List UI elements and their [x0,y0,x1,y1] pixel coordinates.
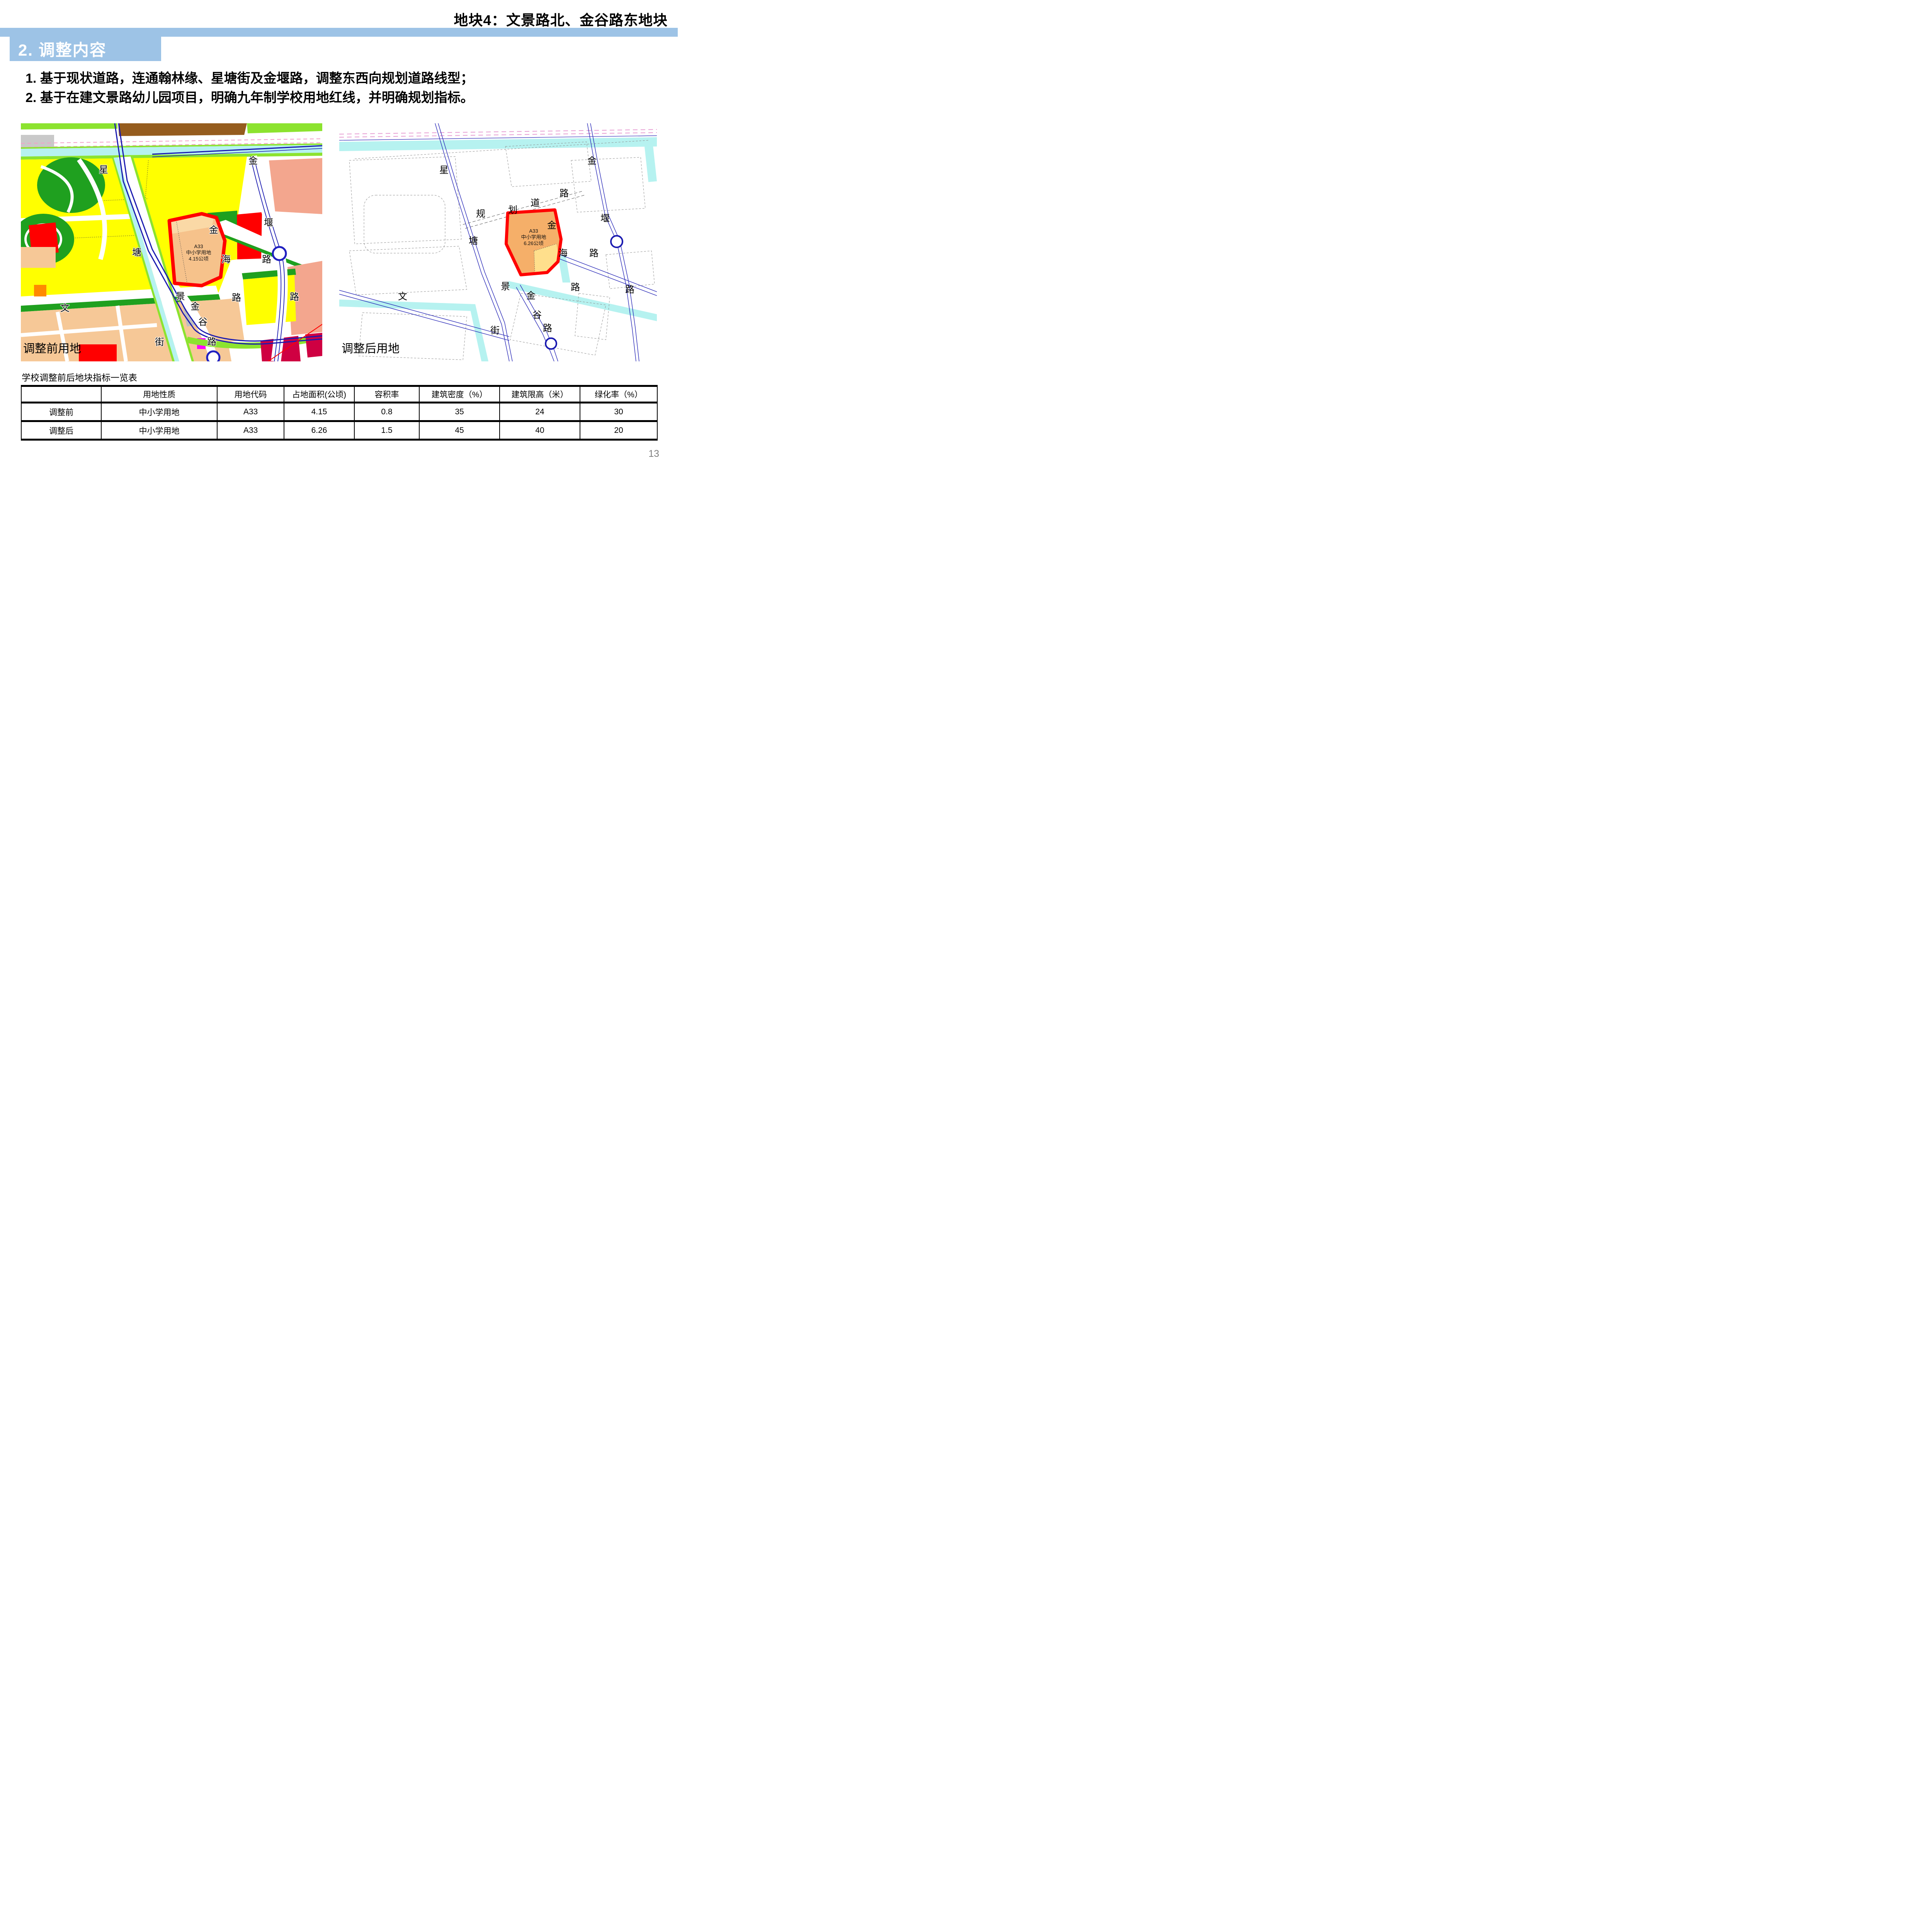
cell: 调整后 [21,421,101,440]
cell: 中小学用地 [101,403,217,421]
street-char: 规 [476,209,485,219]
street-char: 堰 [600,214,610,224]
street-char: 路 [290,292,299,302]
street-char: 金 [190,302,200,312]
section-title: 2. 调整内容 [10,37,107,61]
street-char: 景 [501,282,510,292]
a33-code: A33 [173,243,224,250]
table-title: 学校调整前后地块指标一览表 [22,370,137,383]
header-cell-code: 用地代码 [217,386,284,403]
header-cell-rowlabel [21,386,101,403]
street-char: 塘 [132,248,141,258]
cell: A33 [217,421,284,440]
cell-highlighted: 20 [580,421,657,440]
before-map-graphic [21,123,322,361]
cell-highlighted: 6.26 [284,421,354,440]
intro-text: 1. 基于现状道路，连通翰林缘、星塘街及金堰路，调整东西向规划道路线型； 2. … [26,69,474,107]
cell: 4.15 [284,403,354,421]
page-title: 地块4：文景路北、金谷路东地块 [454,9,668,29]
street-char: 塘 [469,236,478,246]
roundabout [207,351,219,361]
a33-label-before: A33 中小学用地 4.15公顷 [173,243,224,262]
roundabout [611,236,622,247]
cell-highlighted: 45 [419,421,500,440]
street-char: 堰 [264,218,273,228]
street-char: 谷 [532,310,542,320]
street-char: 路 [543,323,552,334]
a33-use: 中小学用地 [509,234,559,240]
cell: A33 [217,403,284,421]
page-number: 13 [648,448,659,460]
street-char: 文 [60,303,70,313]
indicator-table: 用地性质 用地代码 占地面积(公顷) 容积率 建筑密度（%） 建筑限高（米） 绿… [21,385,658,441]
intro-line-2: 2. 基于在建文景路幼儿园项目，明确九年制学校用地红线，并明确规划指标。 [26,88,474,107]
street-char: 街 [490,326,500,336]
map-caption-after: 调整后用地 [342,339,400,356]
a33-use: 中小学用地 [173,250,224,256]
header-cell-area: 占地面积(公顷) [284,386,354,403]
street-char: 路 [625,285,634,295]
street-char: 谷 [198,317,207,327]
street-char: 路 [589,249,599,259]
header-cell-green: 绿化率（%） [580,386,657,403]
cell: 30 [580,403,657,421]
header-cell-density: 建筑密度（%） [419,386,500,403]
a33-code: A33 [509,228,559,234]
slide-page: 地块4：文景路北、金谷路东地块 2. 调整内容 1. 基于现状道路，连通翰林缘、… [0,0,678,479]
cell: 调整前 [21,403,101,421]
street-char: 金 [526,291,536,301]
street-char: 划 [508,205,517,215]
intro-line-1: 1. 基于现状道路，连通翰林缘、星塘街及金堰路，调整东西向规划道路线型； [26,69,474,88]
street-char: 路 [560,189,569,199]
street-char: 路 [232,293,241,303]
roundabout [273,247,286,260]
header-cell-far: 容积率 [354,386,419,403]
table-row-after: 调整后 中小学用地 A33 6.26 1.5 45 40 20 [21,421,657,440]
cell-highlighted: 1.5 [354,421,419,440]
street-char: 路 [571,283,580,293]
header-cell-landuse: 用地性质 [101,386,217,403]
cell: 24 [500,403,580,421]
header-band [0,28,678,37]
street-char: 道 [531,198,540,208]
street-char: 星 [99,165,108,175]
street-char: 文 [398,292,407,302]
a33-area: 6.26公顷 [509,240,559,247]
header-cell-height: 建筑限高（米） [500,386,580,403]
cell: 35 [419,403,500,421]
street-char: 景 [176,292,185,302]
street-char: 街 [155,337,164,347]
section-banner: 2. 调整内容 [10,36,161,61]
street-char: 星 [439,165,449,175]
table-row-before: 调整前 中小学用地 A33 4.15 0.8 35 24 30 [21,403,657,421]
street-char: 路 [207,337,216,347]
street-char: 金 [587,156,597,166]
street-char: 金 [248,156,258,166]
street-char: 路 [262,255,271,265]
map-after: 星 塘 街 规 划 道 路 金 堰 路 金 海 路 景 金 谷 路 文 路 A3… [339,123,657,361]
cell: 0.8 [354,403,419,421]
cell: 中小学用地 [101,421,217,440]
table-header-row: 用地性质 用地代码 占地面积(公顷) 容积率 建筑密度（%） 建筑限高（米） 绿… [21,386,657,403]
cell-highlighted: 40 [500,421,580,440]
street-char: 金 [209,225,218,235]
street-char: 海 [558,249,568,259]
roundabout [546,338,556,349]
a33-area: 4.15公顷 [173,256,224,262]
map-before: 星 塘 街 文 景 金 谷 路 金 海 路 金 堰 路 路 A33 中小学用地 … [21,123,322,361]
map-caption-before: 调整前用地 [23,339,81,356]
a33-label-after: A33 中小学用地 6.26公顷 [509,228,559,247]
